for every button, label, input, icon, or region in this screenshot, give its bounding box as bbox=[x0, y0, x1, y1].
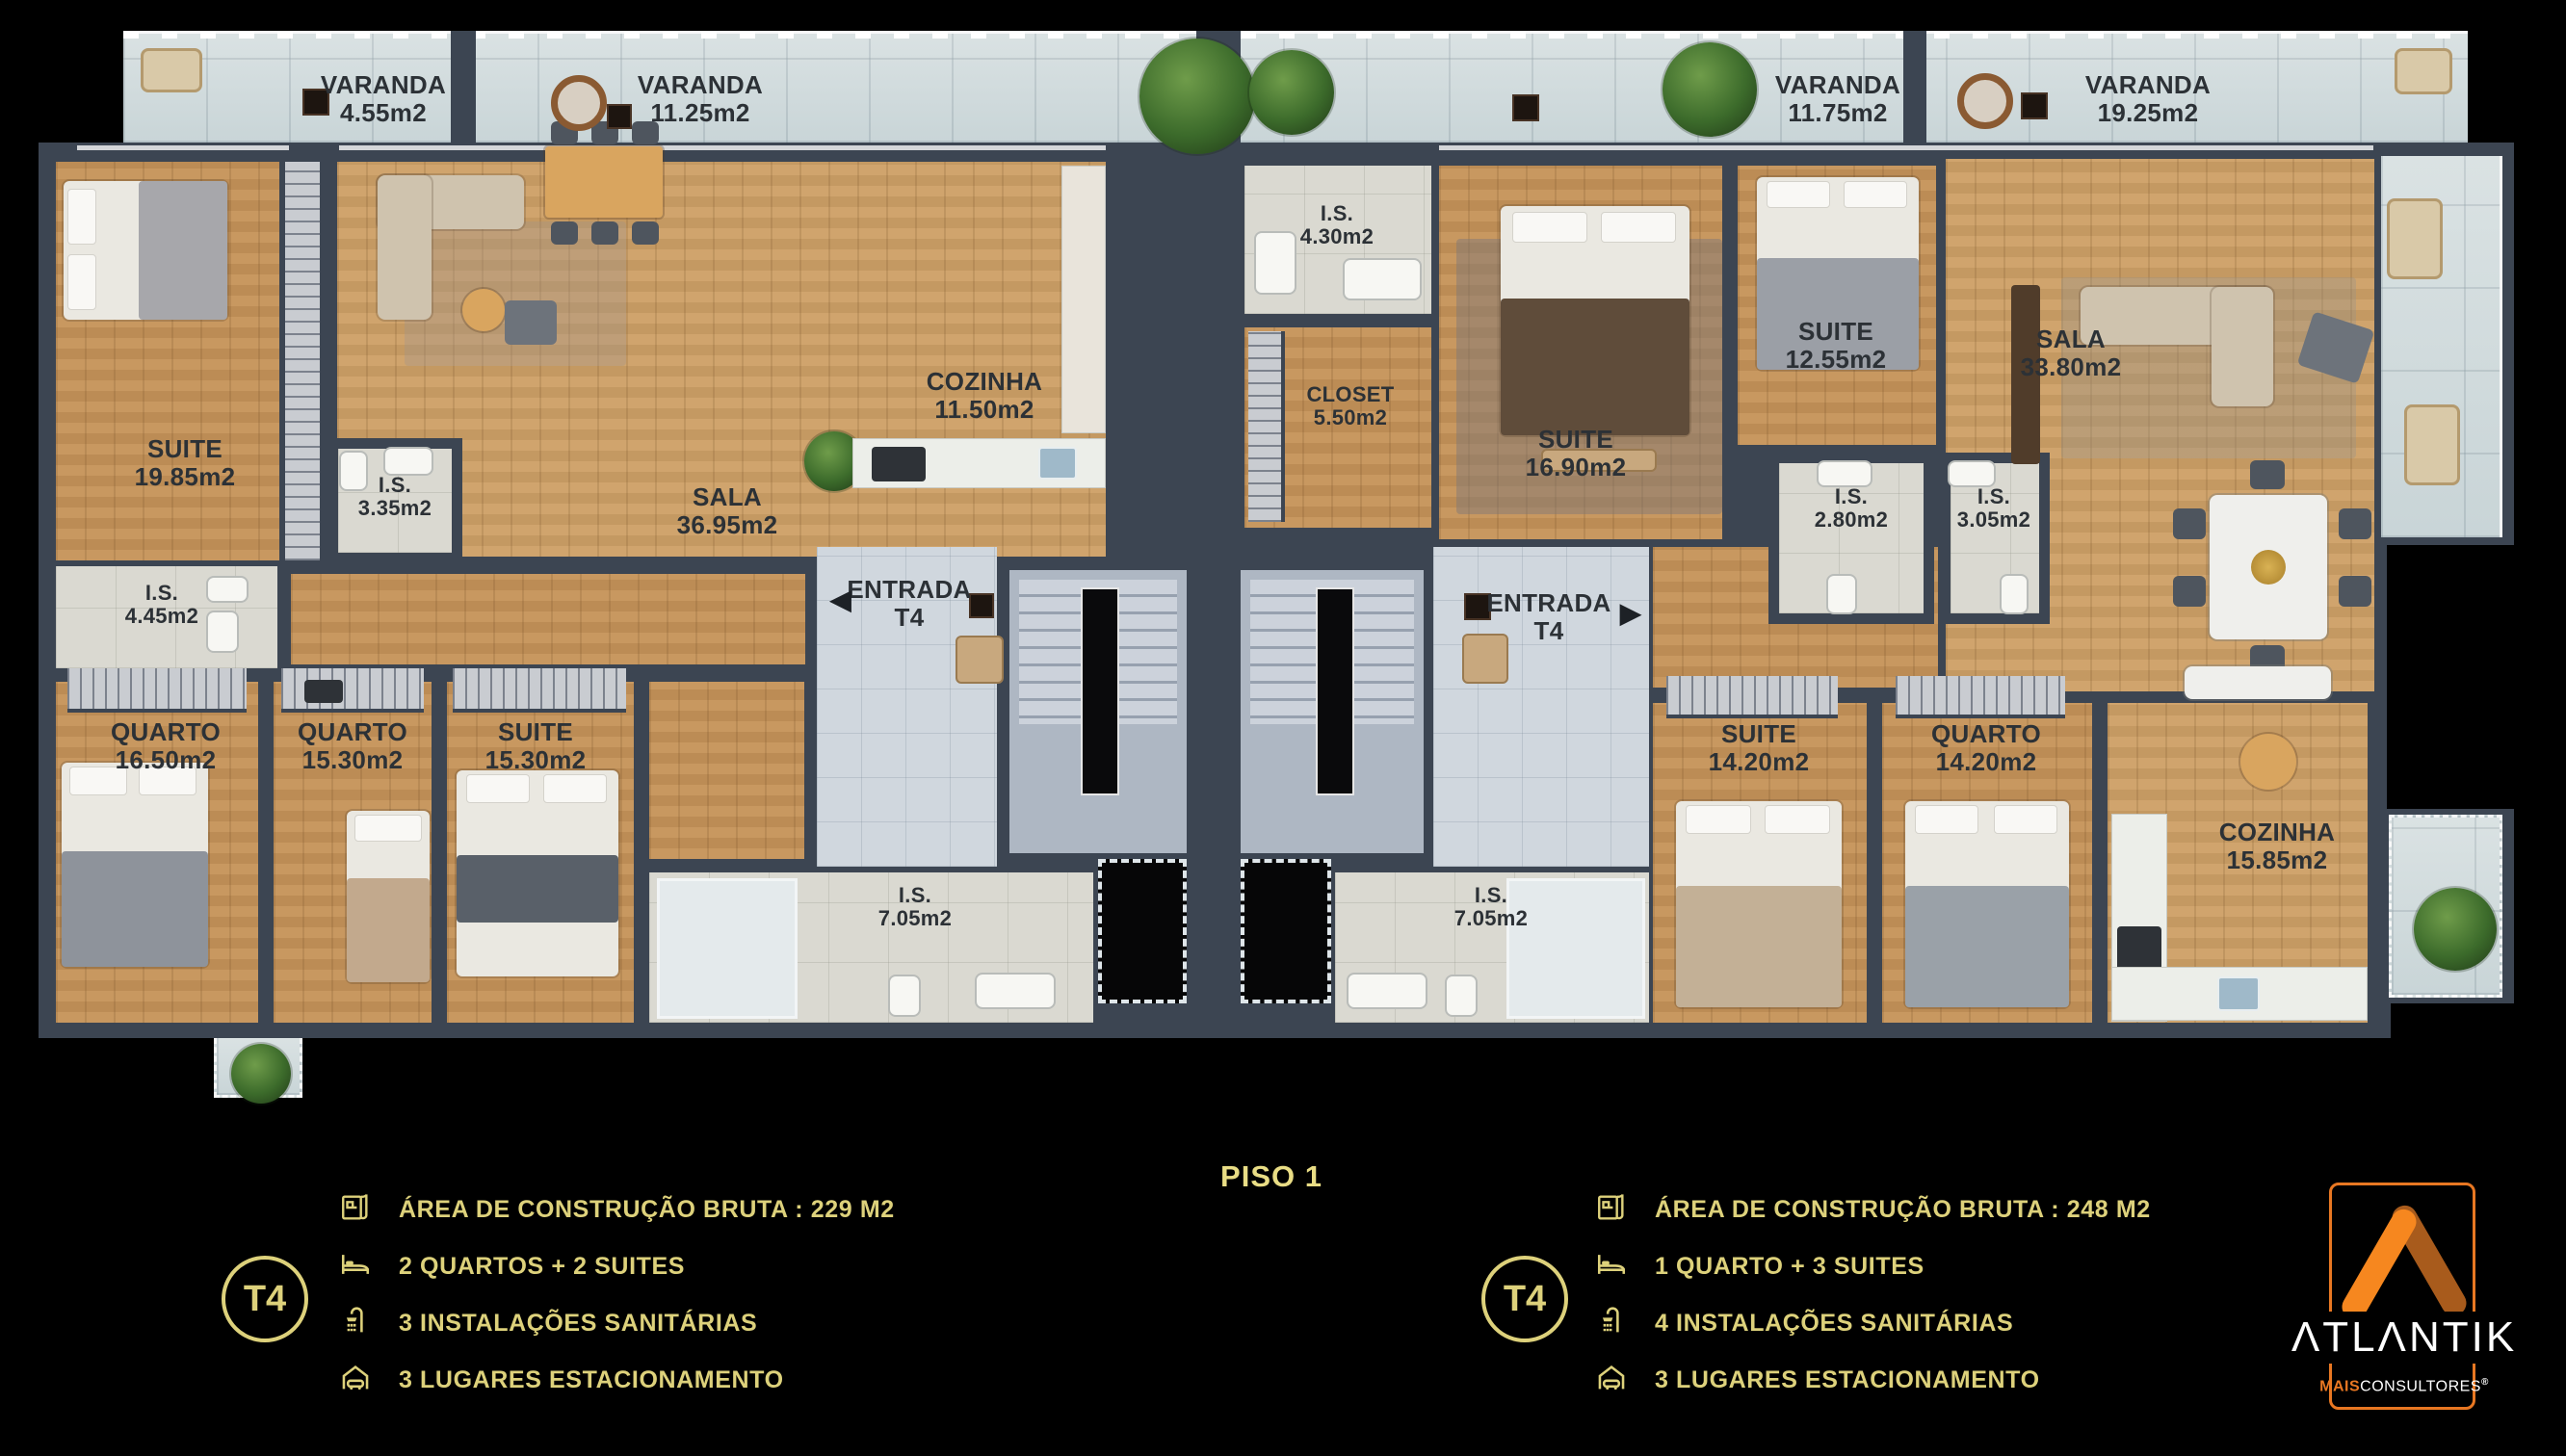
dining-table bbox=[545, 146, 663, 218]
toilet bbox=[888, 975, 921, 1017]
legend-row: 3 LUGARES ESTACIONAMENTO bbox=[1595, 1363, 2151, 1397]
bed bbox=[1501, 206, 1689, 435]
entrance-arrow-left: ◀ bbox=[830, 584, 851, 615]
planter bbox=[2021, 92, 2048, 119]
bathtub bbox=[1343, 258, 1422, 300]
room-label-suite: SUITE16.90m2 bbox=[1526, 426, 1627, 481]
logo-tagline-bold: MAIS bbox=[2319, 1378, 2360, 1394]
atlantik-logo bbox=[2329, 1183, 2475, 1410]
planter bbox=[607, 104, 632, 129]
shower-icon bbox=[1595, 1305, 1628, 1342]
legend-text: 2 QUARTOS + 2 SUITES bbox=[399, 1253, 685, 1281]
stair-well bbox=[1081, 587, 1119, 795]
closet-strip bbox=[67, 668, 247, 713]
chair bbox=[632, 221, 659, 245]
room-label-cozinha: COZINHA15.85m2 bbox=[2219, 819, 2336, 873]
room-label-is: I.S.7.05m2 bbox=[878, 884, 952, 930]
legend-text: 1 QUARTO + 3 SUITES bbox=[1655, 1253, 1924, 1281]
bed-icon bbox=[339, 1248, 372, 1286]
table-centerpiece bbox=[2251, 550, 2286, 585]
floorplan-icon bbox=[339, 1191, 372, 1229]
bed bbox=[62, 763, 208, 967]
chair bbox=[2173, 508, 2206, 539]
room-label-cozinha: COZINHA11.50m2 bbox=[927, 368, 1043, 423]
sink bbox=[206, 576, 249, 603]
room-label-is: I.S.7.05m2 bbox=[1454, 884, 1528, 930]
long-table bbox=[2185, 666, 2331, 699]
logo-tagline-rest: CONSULTORES bbox=[2360, 1378, 2481, 1394]
bench bbox=[956, 636, 1004, 684]
room-label-is: I.S.2.80m2 bbox=[1815, 485, 1888, 532]
varanda-divider-wall bbox=[1903, 31, 1926, 143]
room-label-sala: SALA33.80m2 bbox=[2021, 325, 2122, 380]
floor-title: PISO 1 bbox=[1220, 1159, 1322, 1194]
legend-right: ÁREA DE CONSTRUÇÃO BRUTA : 248 M2 1 QUAR… bbox=[1595, 1192, 2151, 1397]
room-label-quarto: QUARTO14.20m2 bbox=[1931, 720, 2041, 775]
window-band bbox=[1439, 145, 2373, 150]
toilet bbox=[1445, 975, 1478, 1017]
closet-strip bbox=[1666, 676, 1838, 718]
unit-type-badge-left: T4 bbox=[222, 1256, 308, 1342]
chair bbox=[551, 221, 578, 245]
tv bbox=[304, 680, 343, 703]
room-label-is: I.S.4.30m2 bbox=[1300, 202, 1374, 248]
chair bbox=[2173, 576, 2206, 607]
sink bbox=[383, 447, 433, 476]
planter bbox=[969, 593, 994, 618]
stair-well bbox=[1316, 587, 1354, 795]
closet-strip bbox=[1896, 676, 2065, 718]
closet-strip bbox=[281, 668, 424, 713]
window-band bbox=[339, 145, 1106, 150]
registered-mark: ® bbox=[2481, 1377, 2489, 1388]
chair bbox=[2339, 508, 2371, 539]
room-label-suite: SUITE14.20m2 bbox=[1709, 720, 1810, 775]
legend-text: 3 INSTALAÇÕES SANITÁRIAS bbox=[399, 1310, 757, 1338]
round-table bbox=[2240, 734, 2296, 790]
kitchen-sink bbox=[2217, 976, 2260, 1011]
legend-text: 3 LUGARES ESTACIONAMENTO bbox=[399, 1366, 784, 1394]
armchair bbox=[505, 300, 557, 345]
bed-icon bbox=[1595, 1248, 1628, 1286]
wardrobe-corridor bbox=[285, 162, 324, 560]
stairwell-right bbox=[1241, 570, 1424, 853]
planter bbox=[1512, 94, 1539, 121]
shower bbox=[657, 878, 798, 1019]
sofa bbox=[378, 175, 432, 320]
lounge-chair bbox=[141, 48, 202, 92]
legend-row: 4 INSTALAÇÕES SANITÁRIAS bbox=[1595, 1306, 2151, 1340]
entrance-arrow-right: ▶ bbox=[1620, 597, 1641, 629]
logo-chevron-left bbox=[2338, 1205, 2422, 1324]
light-well bbox=[1241, 859, 1331, 1003]
legend-row: 3 LUGARES ESTACIONAMENTO bbox=[339, 1363, 895, 1397]
room-label-closet: CLOSET5.50m2 bbox=[1306, 383, 1394, 429]
room-label-suite: SUITE19.85m2 bbox=[135, 435, 236, 490]
coffee-table bbox=[462, 289, 505, 331]
room-label-is: I.S.3.05m2 bbox=[1957, 485, 2030, 532]
chair bbox=[591, 221, 618, 245]
background-cutout bbox=[2391, 1003, 2516, 1038]
legend-row: ÁREA DE CONSTRUÇÃO BRUTA : 248 M2 bbox=[1595, 1192, 2151, 1227]
closet-strip bbox=[453, 668, 626, 713]
legend-text: ÁREA DE CONSTRUÇÃO BRUTA : 229 M2 bbox=[399, 1196, 895, 1224]
bed bbox=[64, 181, 227, 320]
hanging-chair bbox=[551, 75, 607, 131]
sink bbox=[1948, 460, 1996, 487]
room-label-quarto: QUARTO15.30m2 bbox=[298, 718, 407, 773]
bed bbox=[347, 811, 430, 982]
lounge-chair bbox=[2387, 198, 2443, 279]
plant bbox=[2414, 888, 2497, 971]
lounge-chair bbox=[2404, 404, 2460, 485]
corridor-to-is bbox=[649, 682, 804, 859]
varanda-label: VARANDA19.25m2 bbox=[2085, 71, 2211, 126]
legend-text: 4 INSTALAÇÕES SANITÁRIAS bbox=[1655, 1310, 2013, 1338]
room-label-suite: SUITE12.55m2 bbox=[1786, 318, 1887, 373]
entrance-label-left: ENTRADAT4 bbox=[847, 576, 971, 631]
legend-row: 1 QUARTO + 3 SUITES bbox=[1595, 1249, 2151, 1284]
legend-text: 3 LUGARES ESTACIONAMENTO bbox=[1655, 1366, 2040, 1394]
garage-icon bbox=[1595, 1362, 1628, 1399]
kitchen-cabinets bbox=[1061, 166, 1106, 433]
bed bbox=[1676, 801, 1842, 1007]
plant bbox=[1139, 39, 1255, 154]
room-label-suite: SUITE15.30m2 bbox=[485, 718, 587, 773]
toilet bbox=[2000, 574, 2029, 614]
sink bbox=[1347, 973, 1427, 1009]
sink bbox=[975, 973, 1056, 1009]
room-label-quarto: QUARTO16.50m2 bbox=[111, 718, 221, 773]
room-label-sala: SALA36.95m2 bbox=[677, 483, 778, 538]
chair bbox=[2250, 460, 2285, 489]
stairwell-left bbox=[1009, 570, 1187, 853]
garage-icon bbox=[339, 1362, 372, 1399]
background-cutout bbox=[2387, 545, 2516, 809]
varanda-label: VARANDA4.55m2 bbox=[321, 71, 446, 126]
toilet bbox=[206, 611, 239, 653]
cooktop bbox=[872, 447, 926, 481]
legend-row: ÁREA DE CONSTRUÇÃO BRUTA : 229 M2 bbox=[339, 1192, 895, 1227]
legend-left: ÁREA DE CONSTRUÇÃO BRUTA : 229 M2 2 QUAR… bbox=[339, 1192, 895, 1397]
bed bbox=[457, 770, 618, 976]
room-label-is: I.S.3.35m2 bbox=[358, 474, 432, 520]
shower-icon bbox=[339, 1305, 372, 1342]
hanging-chair bbox=[1957, 73, 2013, 129]
varanda-label: VARANDA11.75m2 bbox=[1775, 71, 1900, 126]
floorplan-icon bbox=[1595, 1191, 1628, 1229]
logo-brand-text: ΛTLΛNTIK bbox=[2284, 1312, 2525, 1364]
legend-row: 2 QUARTOS + 2 SUITES bbox=[339, 1249, 895, 1284]
sink bbox=[1817, 460, 1872, 487]
legend-row: 3 INSTALAÇÕES SANITÁRIAS bbox=[339, 1306, 895, 1340]
plant bbox=[231, 1044, 291, 1104]
entrance-label-right: ENTRADAT4 bbox=[1486, 589, 1610, 644]
varanda-divider-wall bbox=[451, 31, 476, 143]
chair bbox=[2339, 576, 2371, 607]
lounge-chair bbox=[2395, 48, 2452, 94]
logo-tagline: MAISCONSULTORES® bbox=[2319, 1377, 2489, 1395]
bed bbox=[1905, 801, 2069, 1007]
plant bbox=[1249, 50, 1334, 135]
vanity bbox=[1254, 231, 1296, 295]
window-band bbox=[77, 145, 289, 150]
unit-type-badge-right: T4 bbox=[1481, 1256, 1568, 1342]
plant bbox=[1663, 42, 1757, 137]
toilet bbox=[1826, 574, 1857, 614]
sofa-chaise bbox=[2212, 287, 2273, 406]
light-well bbox=[1098, 859, 1187, 1003]
legend-text: ÁREA DE CONSTRUÇÃO BRUTA : 248 M2 bbox=[1655, 1196, 2151, 1224]
floorplan-page: VARANDA4.55m2 VARANDA11.25m2 VARANDA11.7… bbox=[0, 0, 2566, 1456]
room-label-is: I.S.4.45m2 bbox=[125, 582, 198, 628]
varanda-label: VARANDA11.25m2 bbox=[638, 71, 763, 126]
closet-wardrobe bbox=[1248, 331, 1285, 522]
kitchen-sink bbox=[1038, 447, 1077, 480]
hallway-left bbox=[291, 574, 805, 664]
